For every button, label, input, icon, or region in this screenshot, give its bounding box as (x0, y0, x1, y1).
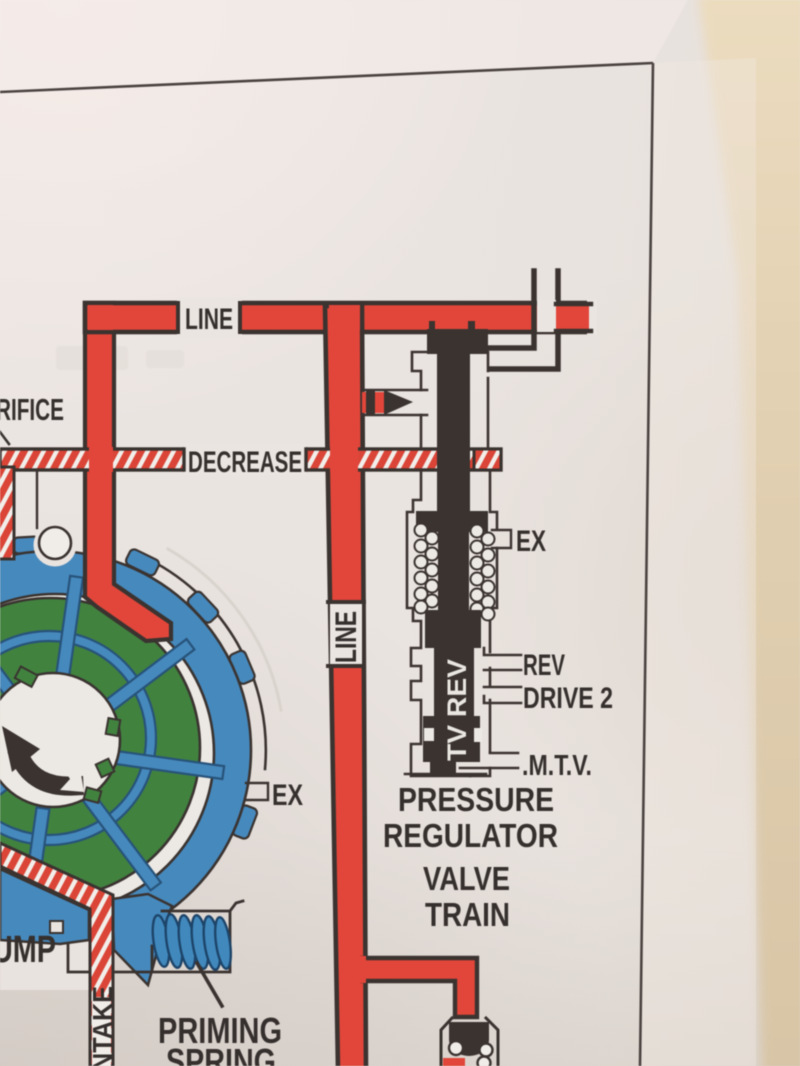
svg-text:.M.T.V.: .M.T.V. (522, 750, 592, 782)
svg-text:INTAKE: INTAKE (87, 986, 118, 1066)
svg-text:SPRING: SPRING (166, 1041, 276, 1066)
svg-text:UMP: UMP (0, 929, 56, 971)
svg-text:REGULATOR: REGULATOR (383, 817, 558, 854)
svg-text:DECREASE: DECREASE (188, 446, 302, 479)
svg-text:DRIVE 2: DRIVE 2 (523, 682, 613, 715)
svg-text:LINE: LINE (185, 303, 233, 336)
svg-text:EX: EX (516, 525, 546, 558)
svg-text:RIFICE: RIFICE (0, 392, 64, 427)
svg-text:EX: EX (272, 779, 303, 812)
svg-text:TV REV: TV REV (442, 659, 472, 761)
svg-text:TRAIN: TRAIN (425, 896, 510, 933)
svg-text:REV: REV (523, 649, 565, 682)
svg-text:PRESSURE: PRESSURE (398, 781, 554, 818)
svg-text:VALVE: VALVE (423, 860, 510, 897)
svg-text:LINE: LINE (330, 611, 363, 663)
